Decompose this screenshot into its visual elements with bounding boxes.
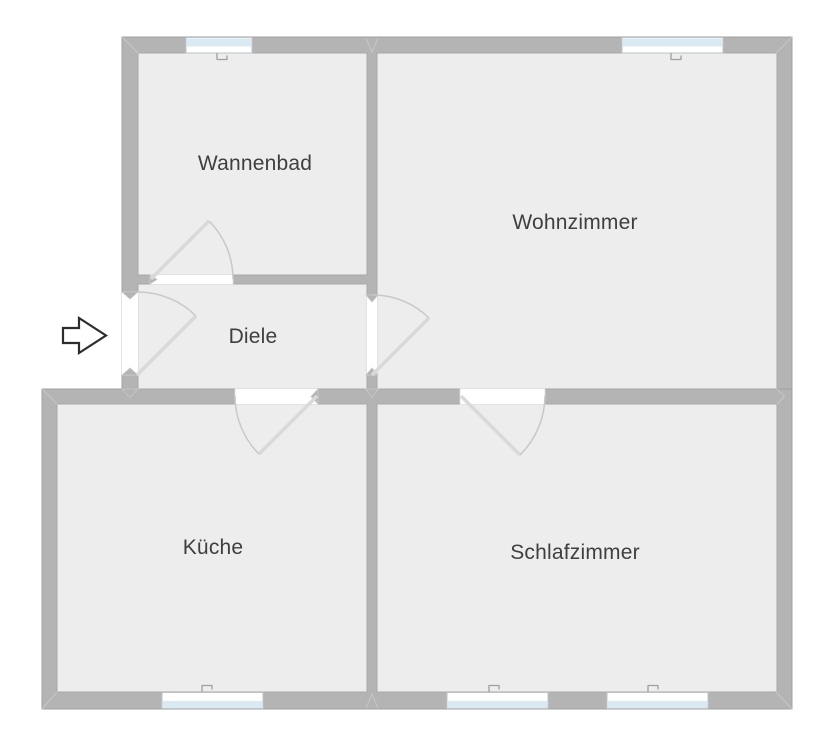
entrance-arrow-icon bbox=[63, 318, 106, 353]
room-label-wannenbad: Wannenbad bbox=[198, 152, 312, 176]
opening-kueche bbox=[235, 389, 318, 405]
opening-wohnzimmer bbox=[367, 295, 378, 375]
opening-wannenbad bbox=[150, 275, 233, 285]
window-wannenbad bbox=[186, 38, 252, 54]
room-floors bbox=[57, 53, 777, 692]
opening-entrance bbox=[122, 292, 139, 375]
window-wohnzimmer bbox=[622, 38, 723, 54]
floor-plan-drawing bbox=[0, 0, 834, 754]
room-label-kueche: Küche bbox=[183, 536, 244, 560]
room-label-wohnzimmer: Wohnzimmer bbox=[512, 211, 637, 235]
floor-plan-canvas: Wannenbad Wohnzimmer Diele Küche Schlafz… bbox=[0, 0, 834, 754]
room-label-diele: Diele bbox=[229, 325, 278, 349]
opening-schlafzimmer bbox=[460, 389, 545, 405]
window-schlafzimmer-2 bbox=[607, 693, 708, 709]
window-kueche bbox=[162, 693, 263, 709]
room-label-schlafzimmer: Schlafzimmer bbox=[510, 541, 640, 565]
window-schlafzimmer-1 bbox=[447, 693, 548, 709]
